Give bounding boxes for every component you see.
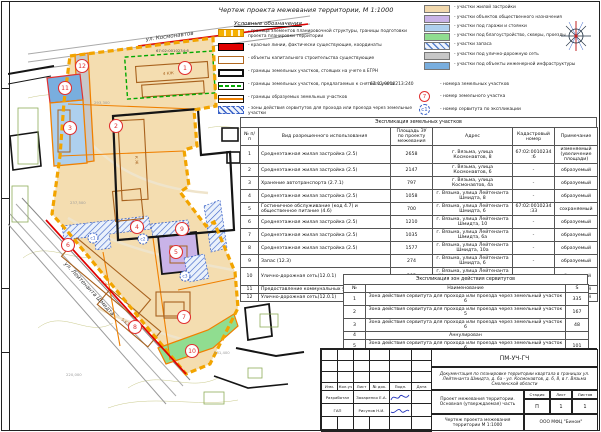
person-name: Рисунов Н.И. xyxy=(354,404,390,417)
parcels-table-title: Экспликация земельных участков xyxy=(240,117,597,127)
table-cell: 700 xyxy=(391,203,433,216)
table-cell: 3 xyxy=(241,177,259,190)
table-cell: 1210 xyxy=(391,216,433,229)
svg-text:6: 6 xyxy=(66,242,70,249)
sheets-label: Листов xyxy=(572,390,598,399)
legend-label: - граница элементов планировочной структ… xyxy=(248,29,420,39)
table-cell: - xyxy=(513,229,555,242)
legend-item: - красные линии, фактически существующие… xyxy=(218,43,420,51)
table-cell: 7 xyxy=(241,229,259,242)
planning-boundary-swatch xyxy=(218,29,244,37)
role-label: ГАП xyxy=(322,404,354,417)
svg-text:4: 4 xyxy=(135,224,139,231)
legend-item: - объекты капитального строительства сущ… xyxy=(218,56,420,64)
table-cell: сохраняемый xyxy=(555,203,598,216)
signature-cell xyxy=(390,404,412,417)
removal-boundary-swatch xyxy=(218,82,244,90)
north-arrow-icon xyxy=(560,20,592,52)
legend-label: - участки под улично-дорожную сеть xyxy=(454,52,594,57)
table-cell: 3 xyxy=(344,319,366,332)
servitude-number-label: - номер сервитута по экспликации xyxy=(440,107,590,112)
parcel-number-label: - номер земельного участка xyxy=(440,94,590,99)
table-cell: - xyxy=(513,190,555,203)
column-header: Адрес xyxy=(433,128,513,146)
table-cell: 10 xyxy=(241,268,259,286)
table-cell: 2658 xyxy=(391,146,433,164)
svg-text:К Ж: К Ж xyxy=(134,156,139,165)
table-cell: 48 xyxy=(566,319,589,332)
legend-label: - зоны действия сервитутов для прохода и… xyxy=(248,106,420,116)
table-cell: Среднеэтажная жилая застройка (2.5) xyxy=(259,164,391,177)
table-row: 8Среднеэтажная жилая застройка (2.5)1577… xyxy=(241,242,598,255)
residential-swatch xyxy=(424,5,450,13)
table-cell: г. Вязьма, улица Лейтенанта Шмидта, 10 xyxy=(433,216,513,229)
legend-label: - участки под объекты инженерной инфраст… xyxy=(454,62,594,67)
legend-item: - границы образуемых земельных участков xyxy=(218,95,420,103)
table-cell: 1035 xyxy=(391,229,433,242)
svg-text:с1: с1 xyxy=(90,236,95,242)
table-cell: Зона действия сервитута для прохода или … xyxy=(366,293,566,306)
role-label: Разработал xyxy=(322,391,354,404)
table-cell: 6 xyxy=(241,216,259,229)
table-row: 5Гостиничное обслуживание (код 4.7) и об… xyxy=(241,203,598,216)
table-cell: 1058 xyxy=(391,190,433,203)
table-cell: г. Вязьма, улица Космонавтов, 8 xyxy=(433,146,513,164)
table-row: 2Зона действия сервитута для прохода или… xyxy=(344,306,589,319)
legend-heading: Условные обозначения xyxy=(234,21,302,27)
road-network-swatch xyxy=(424,52,450,60)
table-cell: 1 xyxy=(241,146,259,164)
table-cell: 1577 xyxy=(391,242,433,255)
table-cell: 2147 xyxy=(391,164,433,177)
drawing-title: Чертеж проекта межевания территории М 1:… xyxy=(431,414,524,431)
table-cell: образуемый xyxy=(555,229,598,242)
servitudes-table: №НаименованиеS 1Зона действия сервитута … xyxy=(343,284,589,353)
page-title: Чертеж проекта межевания территории, М 1… xyxy=(188,6,424,14)
table-row: 2Среднеэтажная жилая застройка (2.5)2147… xyxy=(241,164,598,177)
gap-row: ГАП Рисунов Н.И. xyxy=(322,404,432,417)
table-cell: 67:02:0010234:33 xyxy=(513,203,555,216)
signature-icon xyxy=(390,392,410,403)
table-cell: образуемый xyxy=(555,190,598,203)
revision-header-row: Изм. Кол.уч Лист № док. Подп. Дата xyxy=(322,383,432,391)
table-cell: 4 xyxy=(344,332,366,340)
legend-label: - границы образуемых земельных участков xyxy=(248,95,420,100)
table-cell: - xyxy=(513,164,555,177)
servitudes-table-title: Экспликация зон действия сервитутов xyxy=(343,274,588,284)
table-cell: г. Вязьма, улица Лейтенанта Шмидта, 6 xyxy=(433,203,513,216)
table-cell: - xyxy=(513,177,555,190)
table-cell: г. Вязьма, улица Лейтенанта Шмидта, 6а xyxy=(433,229,513,242)
table-cell: образуемый xyxy=(555,216,598,229)
engineering-swatch xyxy=(424,62,450,70)
table-cell: 4 xyxy=(241,190,259,203)
table-cell: г. Вязьма, улица Лейтенанта Шмидта, 10а xyxy=(433,242,513,255)
table-cell: 2 xyxy=(241,164,259,177)
drawing-sheet: { "sheet_title": "Чертеж проекта межеван… xyxy=(0,0,601,432)
table-row: 3Хранение автотранспорта (2.7.1)797г. Вя… xyxy=(241,177,598,190)
table-cell: 12 xyxy=(241,294,259,302)
stage-label: Стадия xyxy=(524,390,550,399)
table-cell: Гостиничное обслуживание (код 4.7) и общ… xyxy=(259,203,391,216)
svg-text:2: 2 xyxy=(114,123,118,130)
title-block: Изм. Кол.уч Лист № док. Подп. Дата Разра… xyxy=(320,348,597,430)
table-header-row: №НаименованиеS xyxy=(344,285,589,293)
legend-item: - участки под объекты инженерной инфраст… xyxy=(424,62,594,70)
table-cell: Среднеэтажная жилая застройка (2.5) xyxy=(259,242,391,255)
table-cell: 8 xyxy=(241,242,259,255)
table-cell: 2 xyxy=(344,306,366,319)
svg-text:220,000: 220,000 xyxy=(66,372,82,377)
cadastral-number-label: - номера земельных участков xyxy=(440,82,590,87)
table-cell: изменяемый (увеличение площади) xyxy=(555,146,598,164)
svg-text:3: 3 xyxy=(68,125,72,132)
table-cell: г. Вязьма, улица Космонавтов, 4а xyxy=(433,177,513,190)
servitude-number-icon: с1 xyxy=(419,104,430,115)
table-cell: г. Вязьма, улица Космонавтов, 6 xyxy=(433,164,513,177)
table-cell: 274 xyxy=(391,255,433,268)
table-cell: Зона действия сервитута для прохода или … xyxy=(366,306,566,319)
formed-boundary-swatch xyxy=(218,95,244,103)
table-row: 1Зона действия сервитута для прохода или… xyxy=(344,293,589,306)
cadastral-number-example: 67:02:0010213:240 xyxy=(370,82,414,87)
svg-text:с2: с2 xyxy=(140,237,145,243)
table-header-row: № п/пВид разрешенного использованияПлоща… xyxy=(241,128,598,146)
signature-cell xyxy=(390,391,412,404)
table-cell: - xyxy=(513,216,555,229)
table-cell: Среднеэтажная жилая застройка (2.5) xyxy=(259,229,391,242)
table-cell: образуемый xyxy=(555,164,598,177)
table-cell: - xyxy=(513,255,555,268)
table-cell: 9 xyxy=(241,255,259,268)
table-cell: 797 xyxy=(391,177,433,190)
company-name: ООО МФЦ "Бином" xyxy=(524,414,598,431)
table-row: 1Среднеэтажная жилая застройка (2.5)2658… xyxy=(241,146,598,164)
table-row: 9Запас (12.3)274г. Вязьма, улица Лейтена… xyxy=(241,255,598,268)
legend-item: - участки жилой застройки xyxy=(424,5,594,13)
legend-item: - участки под улично-дорожную сеть xyxy=(424,52,594,60)
legend-label: - границы земельных участков, стоящих на… xyxy=(248,69,420,74)
garage-swatch xyxy=(424,24,450,32)
table-row: 4Аннулирован xyxy=(344,332,589,340)
egrn-boundary-swatch xyxy=(218,69,244,77)
table-cell: Запас (12.3) xyxy=(259,255,391,268)
svg-text:7: 7 xyxy=(182,314,186,321)
parcel-number-icon: 7 xyxy=(419,91,430,102)
column-header: Площадь ЗУ по проекту межевания xyxy=(391,128,433,146)
table-row: 7Среднеэтажная жилая застройка (2.5)1035… xyxy=(241,229,598,242)
signature-icon xyxy=(390,405,410,416)
title-block-revision-table: Изм. Кол.уч Лист № док. Подп. Дата Разра… xyxy=(321,349,432,432)
column-header: № xyxy=(344,285,366,293)
svg-text:с3: с3 xyxy=(182,274,187,280)
svg-text:4 КЖ: 4 КЖ xyxy=(163,70,175,76)
table-cell: Среднеэтажная жилая застройка (2.5) xyxy=(259,216,391,229)
table-cell: 335 xyxy=(566,293,589,306)
column-header: Примечание xyxy=(555,128,598,146)
reserve-swatch xyxy=(424,42,450,50)
table-cell: образуемый xyxy=(555,255,598,268)
table-cell: образуемый xyxy=(555,242,598,255)
servitude-zone-swatch xyxy=(218,106,244,114)
svg-text:5: 5 xyxy=(174,249,178,256)
svg-text:9: 9 xyxy=(180,226,184,233)
legend-item: - границы земельных участков, стоящих на… xyxy=(218,69,420,77)
svg-text:293,300: 293,300 xyxy=(94,100,110,105)
column-header: Кадастровый номер xyxy=(513,128,555,146)
servitudes-table-section: Экспликация зон действия сервитутов №Наи… xyxy=(343,274,588,353)
table-cell xyxy=(566,332,589,340)
building-swatch xyxy=(218,56,244,64)
table-cell: г. Вязьма, улица Лейтенанта Шмидта, 8 xyxy=(433,190,513,203)
svg-text:12: 12 xyxy=(78,63,86,70)
landscaping-swatch xyxy=(424,33,450,41)
column-header: S xyxy=(566,285,589,293)
person-name: Захаренко Е.А. xyxy=(354,391,390,404)
svg-text:11: 11 xyxy=(61,85,69,92)
sheets-value: 1 xyxy=(572,399,598,414)
red-line-swatch xyxy=(218,43,244,51)
table-cell: Аннулирован xyxy=(366,332,566,340)
table-cell: Зона действия сервитута для прохода или … xyxy=(366,319,566,332)
table-cell: Среднеэтажная жилая застройка (2.5) xyxy=(259,190,391,203)
legend-label: - участки жилой застройки xyxy=(454,5,594,10)
legend-item: - граница элементов планировочной структ… xyxy=(218,29,420,39)
table-cell: образуемый xyxy=(555,177,598,190)
developer-row: Разработал Захаренко Е.А. xyxy=(322,391,432,404)
stage-value: П xyxy=(524,399,550,414)
table-cell: 67:02:0010234:6 xyxy=(513,146,555,164)
sheet-label: Лист xyxy=(550,390,572,399)
table-cell: 5 xyxy=(241,203,259,216)
document-code: ПМ-УЧ-ГЧ xyxy=(431,349,598,367)
column-header: Вид разрешенного использования xyxy=(259,128,391,146)
table-row: 6Среднеэтажная жилая застройка (2.5)1210… xyxy=(241,216,598,229)
legend-label: - объекты капитального строительства сущ… xyxy=(248,56,420,61)
table-row: 4Среднеэтажная жилая застройка (2.5)1058… xyxy=(241,190,598,203)
project-name: Проект межевания территории. Основная (у… xyxy=(431,390,524,414)
svg-text:237,500: 237,500 xyxy=(70,200,86,205)
table-cell: Среднеэтажная жилая застройка (2.5) xyxy=(259,146,391,164)
column-header: № п/п xyxy=(241,128,259,146)
legend-label: - красные линии, фактически существующие… xyxy=(248,43,420,48)
table-cell: г. Вязьма, улица Лейтенанта Шмидта, 6 xyxy=(433,255,513,268)
table-cell: - xyxy=(513,242,555,255)
svg-text:231,400: 231,400 xyxy=(214,350,230,355)
svg-text:10: 10 xyxy=(188,348,196,355)
table-cell: 1 xyxy=(344,293,366,306)
svg-text:67:02:0010234:6: 67:02:0010234:6 xyxy=(156,48,189,53)
svg-text:1: 1 xyxy=(183,65,187,72)
project-description: Документация по планировке территории кв… xyxy=(431,367,598,390)
table-cell: Хранение автотранспорта (2.7.1) xyxy=(259,177,391,190)
column-header: Наименование xyxy=(366,285,566,293)
sheet-value: 1 xyxy=(550,399,572,414)
table-row: 3Зона действия сервитута для прохода или… xyxy=(344,319,589,332)
table-cell: 167 xyxy=(566,306,589,319)
legend-item: - зоны действия сервитутов для прохода и… xyxy=(218,106,420,116)
table-cell: 11 xyxy=(241,286,259,294)
public-use-swatch xyxy=(424,15,450,23)
svg-text:8: 8 xyxy=(133,324,137,331)
